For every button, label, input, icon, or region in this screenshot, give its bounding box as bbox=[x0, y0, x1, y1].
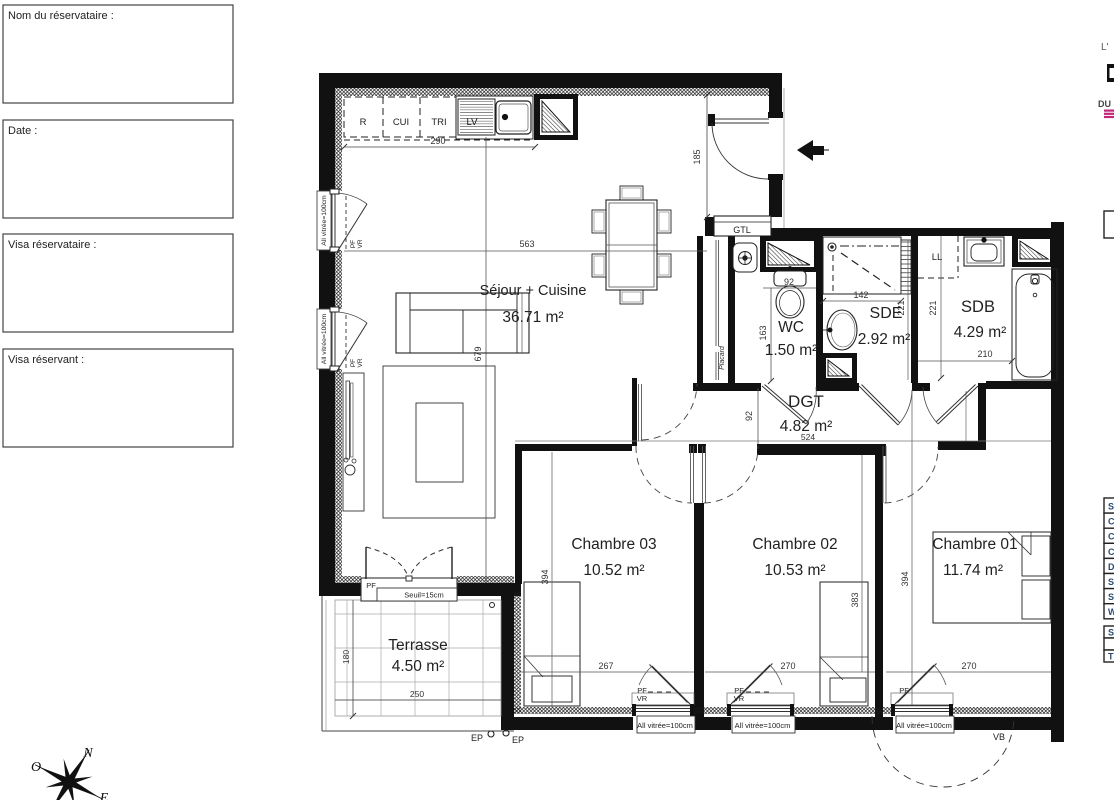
svg-text:VR: VR bbox=[637, 694, 648, 703]
svg-text:142: 142 bbox=[853, 290, 868, 300]
svg-text:Chambre 01: Chambre 01 bbox=[932, 536, 1017, 553]
svg-text:PF: PF bbox=[350, 359, 357, 367]
svg-text:290: 290 bbox=[430, 136, 445, 146]
svg-text:92: 92 bbox=[744, 411, 754, 421]
svg-text:O: O bbox=[31, 760, 41, 775]
svg-text:Visa réservataire :: Visa réservataire : bbox=[8, 239, 96, 251]
svg-text:LV: LV bbox=[467, 117, 479, 128]
svg-text:10.53 m²: 10.53 m² bbox=[764, 562, 825, 579]
svg-text:221: 221 bbox=[928, 300, 938, 315]
svg-text:All vitrée=100cm: All vitrée=100cm bbox=[735, 721, 791, 730]
svg-text:SDE: SDE bbox=[870, 305, 903, 322]
svg-text:L': L' bbox=[1101, 42, 1109, 53]
svg-text:Visa réservant :: Visa réservant : bbox=[8, 354, 84, 366]
svg-text:163: 163 bbox=[758, 325, 768, 340]
svg-text:VR: VR bbox=[357, 239, 364, 248]
svg-text:VB: VB bbox=[993, 732, 1005, 742]
svg-text:Placard: Placard bbox=[719, 345, 726, 370]
svg-text:185: 185 bbox=[692, 149, 702, 164]
svg-text:T: T bbox=[1108, 652, 1114, 662]
svg-text:383: 383 bbox=[850, 592, 860, 607]
svg-text:Séjour + Cuisine: Séjour + Cuisine bbox=[480, 283, 587, 299]
svg-text:210: 210 bbox=[977, 349, 992, 359]
svg-text:394: 394 bbox=[540, 569, 550, 584]
svg-text:180: 180 bbox=[341, 650, 351, 664]
svg-text:C: C bbox=[1108, 532, 1114, 542]
svg-text:S: S bbox=[1108, 502, 1114, 512]
svg-text:PF: PF bbox=[366, 581, 376, 590]
svg-text:DGT: DGT bbox=[788, 392, 824, 411]
svg-text:D: D bbox=[1108, 562, 1114, 572]
svg-text:679: 679 bbox=[473, 346, 483, 361]
svg-text:N: N bbox=[82, 746, 93, 761]
svg-text:CUI: CUI bbox=[393, 117, 409, 128]
svg-text:C: C bbox=[1108, 517, 1114, 527]
svg-text:W: W bbox=[1108, 607, 1114, 617]
svg-text:36.71 m²: 36.71 m² bbox=[502, 309, 563, 326]
svg-text:1.50 m²: 1.50 m² bbox=[765, 342, 818, 359]
svg-text:VR: VR bbox=[734, 694, 745, 703]
svg-text:PF: PF bbox=[899, 686, 909, 695]
svg-text:S: S bbox=[1108, 592, 1114, 602]
svg-text:E: E bbox=[99, 791, 109, 800]
svg-text:C: C bbox=[1108, 547, 1114, 557]
svg-text:All vitrée=100cm: All vitrée=100cm bbox=[637, 721, 693, 730]
svg-text:GTL: GTL bbox=[733, 225, 751, 235]
svg-text:267: 267 bbox=[598, 661, 613, 671]
svg-text:Date :: Date : bbox=[8, 125, 37, 137]
svg-text:250: 250 bbox=[410, 689, 424, 699]
svg-text:563: 563 bbox=[519, 239, 534, 249]
svg-text:4.29 m²: 4.29 m² bbox=[954, 324, 1007, 341]
svg-text:92: 92 bbox=[784, 277, 794, 287]
svg-text:PF: PF bbox=[350, 240, 357, 248]
svg-text:WC: WC bbox=[778, 319, 804, 336]
svg-text:11.74 m²: 11.74 m² bbox=[943, 562, 1003, 579]
svg-text:394: 394 bbox=[900, 571, 910, 586]
svg-text:10.52 m²: 10.52 m² bbox=[583, 562, 644, 579]
svg-text:DU: DU bbox=[1098, 99, 1111, 109]
svg-text:Chambre 02: Chambre 02 bbox=[752, 536, 837, 553]
svg-text:S: S bbox=[1108, 577, 1114, 587]
svg-text:EP: EP bbox=[512, 735, 524, 745]
svg-text:270: 270 bbox=[780, 661, 795, 671]
svg-text:S: S bbox=[1108, 628, 1114, 638]
svg-text:SDB: SDB bbox=[961, 298, 995, 316]
svg-text:All vitrée=100cm: All vitrée=100cm bbox=[896, 721, 952, 730]
svg-text:524: 524 bbox=[801, 432, 815, 442]
svg-text:Terrasse: Terrasse bbox=[388, 637, 447, 654]
svg-text:Chambre 03: Chambre 03 bbox=[571, 536, 656, 553]
svg-text:All vitrée=100cm: All vitrée=100cm bbox=[321, 313, 328, 364]
svg-text:EP: EP bbox=[471, 733, 483, 743]
svg-text:R: R bbox=[360, 117, 367, 128]
svg-text:VR: VR bbox=[357, 358, 364, 367]
svg-text:TRI: TRI bbox=[431, 117, 446, 128]
svg-text:2.92 m²: 2.92 m² bbox=[858, 331, 911, 348]
svg-text:4.50 m²: 4.50 m² bbox=[392, 658, 445, 675]
svg-text:Nom du réservataire :: Nom du réservataire : bbox=[8, 10, 114, 22]
svg-text:Seuil=15cm: Seuil=15cm bbox=[404, 591, 443, 600]
svg-text:All vitrée=100cm: All vitrée=100cm bbox=[321, 195, 328, 246]
svg-text:270: 270 bbox=[961, 661, 976, 671]
